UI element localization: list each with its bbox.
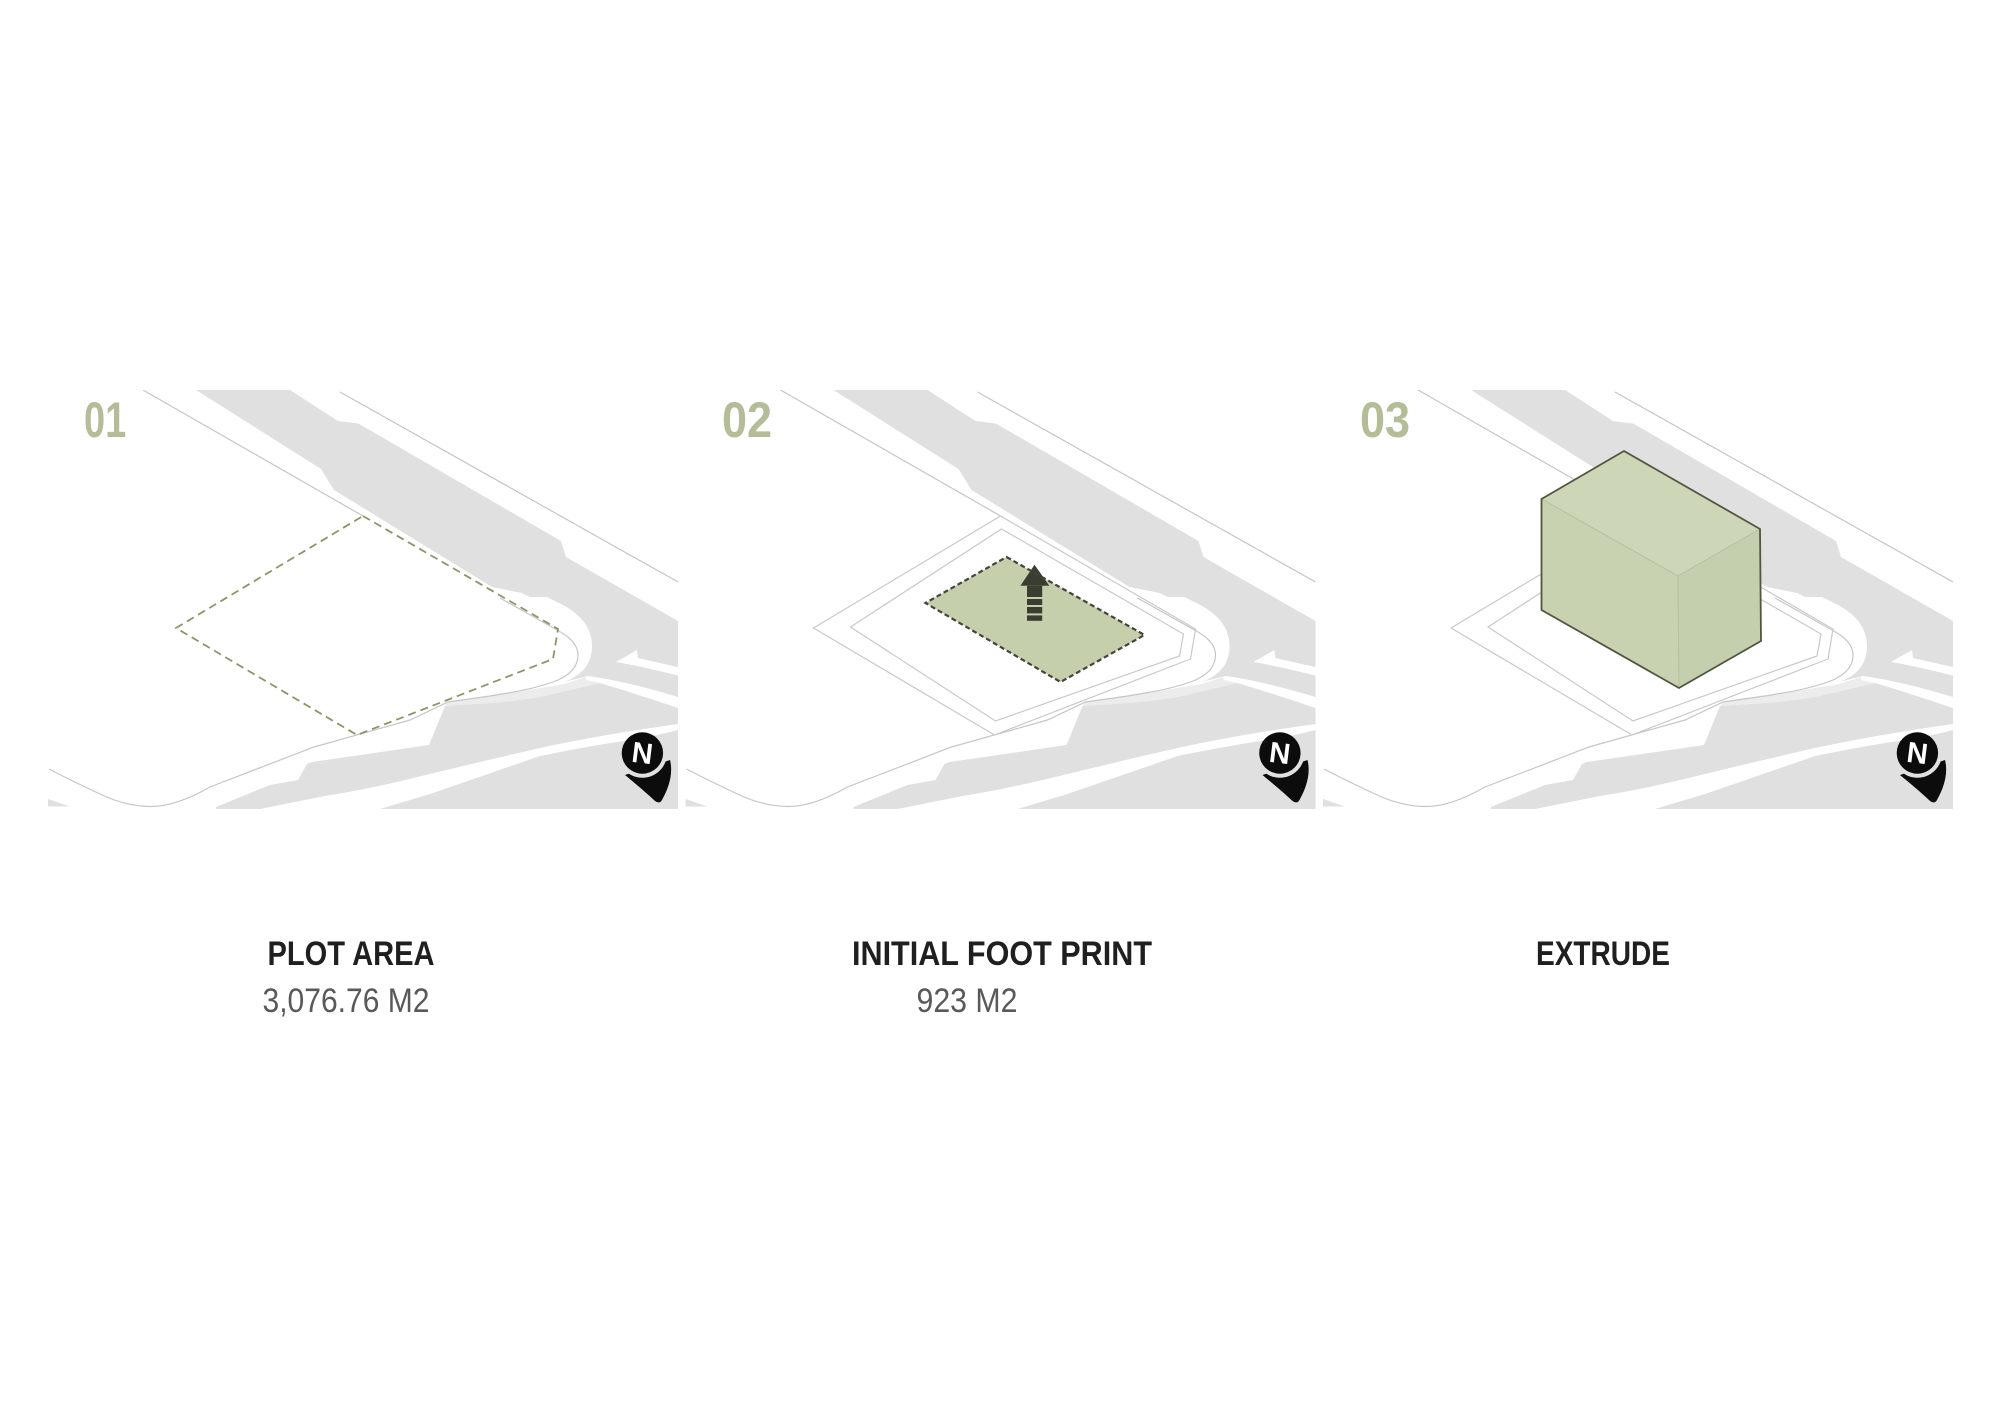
svg-text:01: 01 <box>84 393 126 448</box>
svg-text:INITIAL FOOT PRINT: INITIAL FOOT PRINT <box>852 935 1152 973</box>
svg-text:03: 03 <box>1360 393 1410 449</box>
svg-text:PLOT AREA: PLOT AREA <box>268 935 435 973</box>
svg-text:02: 02 <box>722 393 772 449</box>
svg-text:3,076.76 M2: 3,076.76 M2 <box>263 982 430 1020</box>
svg-text:EXTRUDE: EXTRUDE <box>1536 935 1670 973</box>
svg-text:923 M2: 923 M2 <box>917 982 1018 1020</box>
